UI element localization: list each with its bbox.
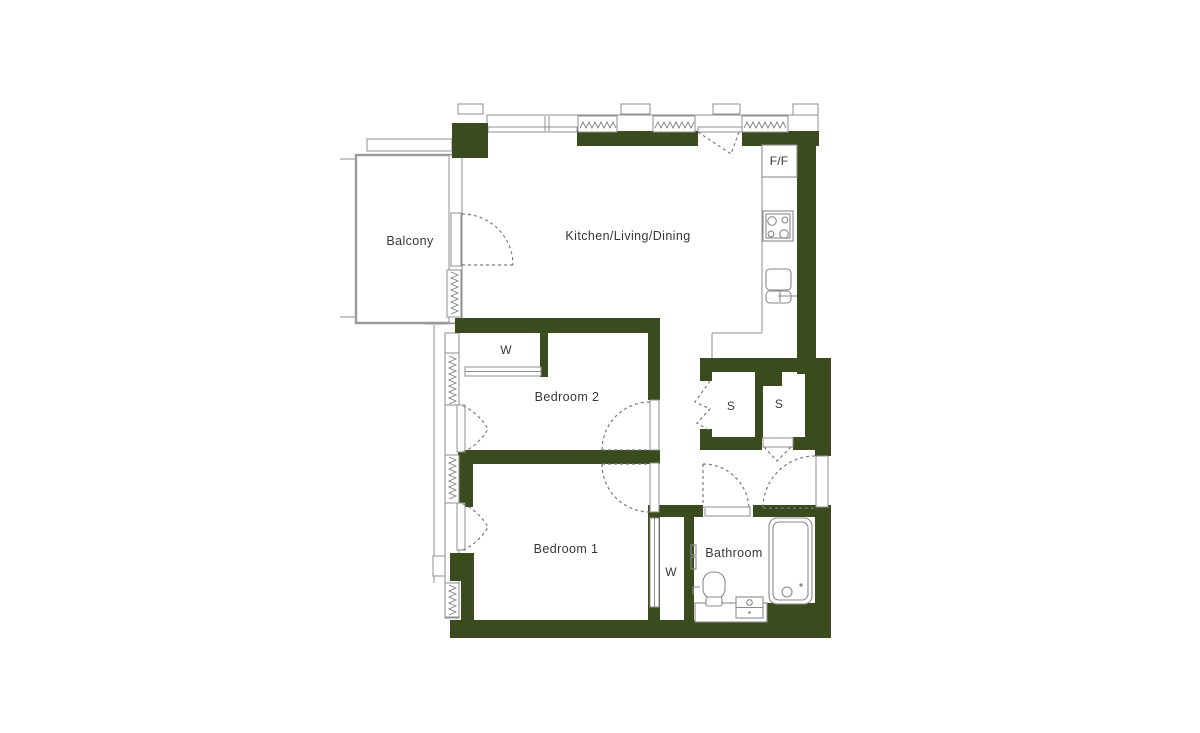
bedroom1-label: Bedroom 1 — [534, 542, 599, 556]
bedroom2-door-leaf — [650, 400, 659, 450]
wall-bedroom-divider — [458, 450, 660, 464]
top-mullion-cap-4 — [793, 104, 818, 115]
balcony-door-leaf — [451, 213, 461, 266]
bedroom1-door-swing-arc — [602, 464, 650, 512]
kitchen-sink-bowl — [766, 269, 791, 290]
bathroom-door-leaf — [705, 507, 750, 516]
wall-top-left-corner — [452, 123, 488, 158]
fridge-freezer-label: F/F — [770, 154, 789, 168]
store-right-door-leaf — [763, 438, 793, 447]
bedroom1-window-leaf — [457, 503, 465, 550]
store-right-label: S — [775, 397, 783, 411]
wall-store-left-stub-bottom — [700, 429, 712, 438]
toilet-bracket — [693, 587, 700, 595]
bedroom2-window-leaf — [457, 405, 465, 452]
wall-bedrooms-east-upper — [648, 318, 660, 400]
basin-dot — [748, 611, 751, 614]
store-left-bifold-dash — [695, 381, 710, 431]
top-mullion-cap-3 — [713, 104, 740, 114]
wall-store-left-stub-top — [700, 372, 712, 381]
window-top-3 — [742, 116, 788, 132]
top-window-sill-2 — [698, 127, 742, 132]
kitchen-living-dining-label: Kitchen/Living/Dining — [565, 229, 690, 243]
bedroom1-window-swing-arc — [463, 504, 488, 550]
wall-store-divider — [755, 358, 763, 438]
wardrobe-bedroom2-label: W — [500, 343, 512, 357]
top-window-sill-1 — [488, 127, 577, 132]
store-left-label: S — [727, 399, 735, 413]
wall-entrance-block-top — [815, 432, 831, 456]
wall-wardrobe-bathroom-divider — [684, 517, 694, 623]
bedroom1-door-leaf — [650, 463, 659, 512]
entrance-door-swing-arc — [763, 456, 815, 508]
wall-top-segment-1 — [577, 131, 698, 146]
wardrobe-hall-label: W — [665, 565, 677, 579]
hob-icon — [763, 211, 793, 241]
bath-tap-dot — [799, 583, 802, 586]
wall-right-mid — [805, 370, 831, 440]
wall-store-top — [700, 358, 831, 372]
toilet-icon — [703, 572, 725, 599]
top-mullion-cap-2 — [621, 104, 650, 114]
wall-bedroom-divider-return — [459, 455, 473, 507]
wall-store-right-notch — [762, 372, 782, 386]
bathroom-label: Bathroom — [705, 546, 762, 560]
wall-bottom-left-column — [461, 580, 474, 622]
balcony-door-swing-arc — [462, 214, 513, 265]
bath-icon — [769, 518, 812, 604]
bathroom-door-swing-arc — [703, 464, 749, 510]
entrance-door-leaf — [816, 456, 828, 507]
kitchen-counter-edge — [712, 177, 762, 358]
balcony-label: Balcony — [386, 234, 433, 248]
balcony-top-screen — [367, 139, 452, 151]
bedroom2-window-swing-arc — [463, 406, 488, 452]
bedroom2-door-swing-arc — [602, 402, 650, 450]
top-mullion-cap-1 — [458, 104, 483, 114]
toilet-cistern — [706, 597, 722, 606]
wall-store-bottom-left — [700, 437, 762, 450]
wall-entrance-block-bottom — [815, 507, 831, 622]
floorplan-canvas: Balcony Kitchen/Living/Dining Bedroom 2 … — [0, 0, 1200, 733]
wall-right-upper — [797, 131, 816, 374]
wall-between-doors — [648, 450, 660, 464]
wall-left-block — [450, 553, 474, 581]
kitchen-sink-drainer — [766, 291, 791, 303]
wall-bottom — [450, 620, 831, 638]
kitchen-fixtures — [712, 145, 797, 358]
store-right-door-dash — [764, 447, 791, 461]
floorplan-drawing — [0, 0, 1200, 733]
kitchen-window-opening-dash — [698, 132, 739, 154]
wall-bedroom2-top — [455, 318, 660, 333]
bedroom2-label: Bedroom 2 — [535, 390, 600, 404]
